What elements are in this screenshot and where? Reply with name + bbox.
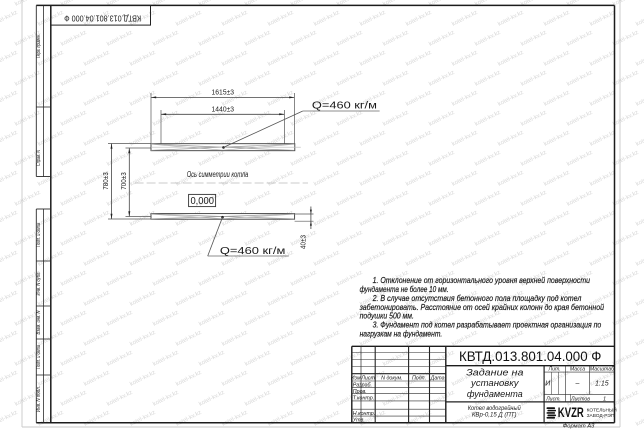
svg-text:Инв. N дубл.: Инв. N дубл.: [36, 272, 42, 296]
svg-text:фундамента: фундамента: [467, 389, 523, 400]
svg-text:Масса: Масса: [570, 366, 585, 372]
svg-text:подушки 500 мм.: подушки 500 мм.: [360, 311, 414, 320]
svg-text:КВТД.013.801.04.000 Ф: КВТД.013.801.04.000 Ф: [459, 348, 602, 364]
svg-text:2. В случае отсутствия бетонно: 2. В случае отсутствия бетонного пола пл…: [372, 294, 582, 303]
svg-text:нагрузкам на фундамент.: нагрузкам на фундамент.: [360, 329, 443, 338]
svg-text:Лит.: Лит.: [548, 366, 561, 372]
svg-text:3. Фундамент под котел разраба: 3. Фундамент под котел разрабатывает про…: [373, 320, 602, 329]
svg-text:1: 1: [603, 396, 606, 402]
svg-text:Лист: Лист: [360, 375, 375, 381]
svg-text:Перв. примен.: Перв. примен.: [36, 34, 42, 58]
svg-text:Н.контр.: Н.контр.: [353, 411, 375, 417]
svg-text:1. Отклонение от горизонтально: 1. Отклонение от горизонтального уровня …: [373, 276, 591, 285]
svg-text:Справ. N: Справ. N: [36, 150, 42, 166]
svg-text:Пров.: Пров.: [353, 389, 367, 395]
svg-text:–: –: [576, 380, 580, 387]
svg-text:KVZR: KVZR: [558, 405, 584, 420]
svg-text:фундамента не более 10 мм.: фундамента не более 10 мм.: [360, 285, 449, 294]
svg-text:Инв. N подл.: Инв. N подл.: [36, 386, 42, 412]
svg-text:Ось симметрии котла: Ось симметрии котла: [187, 170, 249, 179]
svg-text:Дата: Дата: [430, 375, 445, 381]
svg-text:700±3: 700±3: [119, 172, 128, 190]
svg-text:Подп. и дата: Подп. и дата: [36, 223, 42, 247]
svg-text:КВр-0,15 Д (ПТ): КВр-0,15 Д (ПТ): [472, 411, 517, 418]
svg-text:Подп.: Подп.: [412, 375, 426, 381]
svg-text:1:15: 1:15: [595, 381, 609, 388]
svg-text:Взам. инв. N: Взам. инв. N: [36, 310, 42, 334]
svg-text:Q=460 кг/м: Q=460 кг/м: [220, 245, 286, 257]
svg-text:Задание на: Задание на: [466, 368, 523, 379]
svg-text:Масштаб: Масштаб: [590, 366, 615, 372]
svg-text:Листов: Листов: [570, 396, 590, 402]
svg-text:Лист.: Лист.: [545, 396, 561, 402]
svg-text:1615±3: 1615±3: [212, 88, 235, 97]
svg-text:N докум.: N докум.: [381, 375, 402, 381]
svg-text:Разраб.: Разраб.: [353, 382, 372, 388]
svg-text:1440±3: 1440±3: [212, 105, 235, 114]
svg-text:780±3: 780±3: [101, 172, 110, 190]
svg-text:Формат А3: Формат А3: [563, 424, 595, 430]
svg-text:0,000: 0,000: [190, 196, 214, 207]
svg-text:Утв.: Утв.: [353, 418, 365, 424]
svg-text:Т.контр.: Т.контр.: [353, 396, 374, 402]
svg-text:Q=460 кг/м: Q=460 кг/м: [312, 100, 377, 112]
svg-text:КВТД.013.801.04.000 Ф: КВТД.013.801.04.000 Ф: [64, 13, 141, 23]
svg-text:40±3: 40±3: [299, 235, 308, 249]
svg-text:Подп. и дата: Подп. и дата: [36, 345, 42, 369]
svg-text:установку: установку: [470, 378, 520, 389]
svg-text:ЗАВОД-РЭП: ЗАВОД-РЭП: [587, 413, 615, 419]
